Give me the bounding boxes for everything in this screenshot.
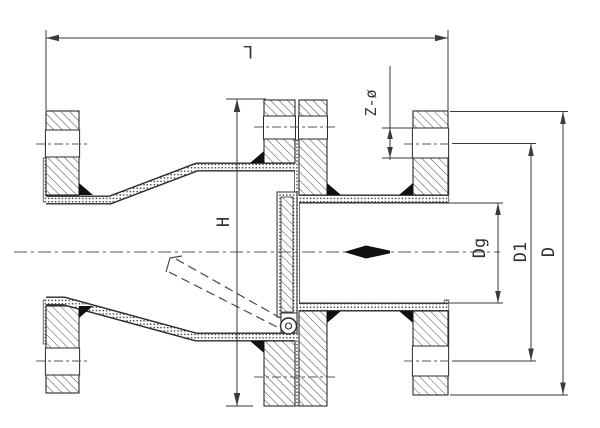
- valve-section-drawing: L H Z-ø Dg D1: [0, 0, 600, 428]
- valve-disc: [277, 192, 297, 334]
- label-height: H: [214, 217, 234, 227]
- label-outside-diameter: D: [539, 247, 559, 257]
- label-nominal-bore: Dg: [470, 238, 490, 258]
- label-bolt-holes: Z-ø: [362, 89, 380, 116]
- label-length: L: [243, 41, 253, 61]
- label-bolt-circle: D1: [511, 242, 531, 262]
- drawing-canvas: L H Z-ø Dg D1: [0, 0, 600, 428]
- hinge-pin-bore: [286, 323, 292, 329]
